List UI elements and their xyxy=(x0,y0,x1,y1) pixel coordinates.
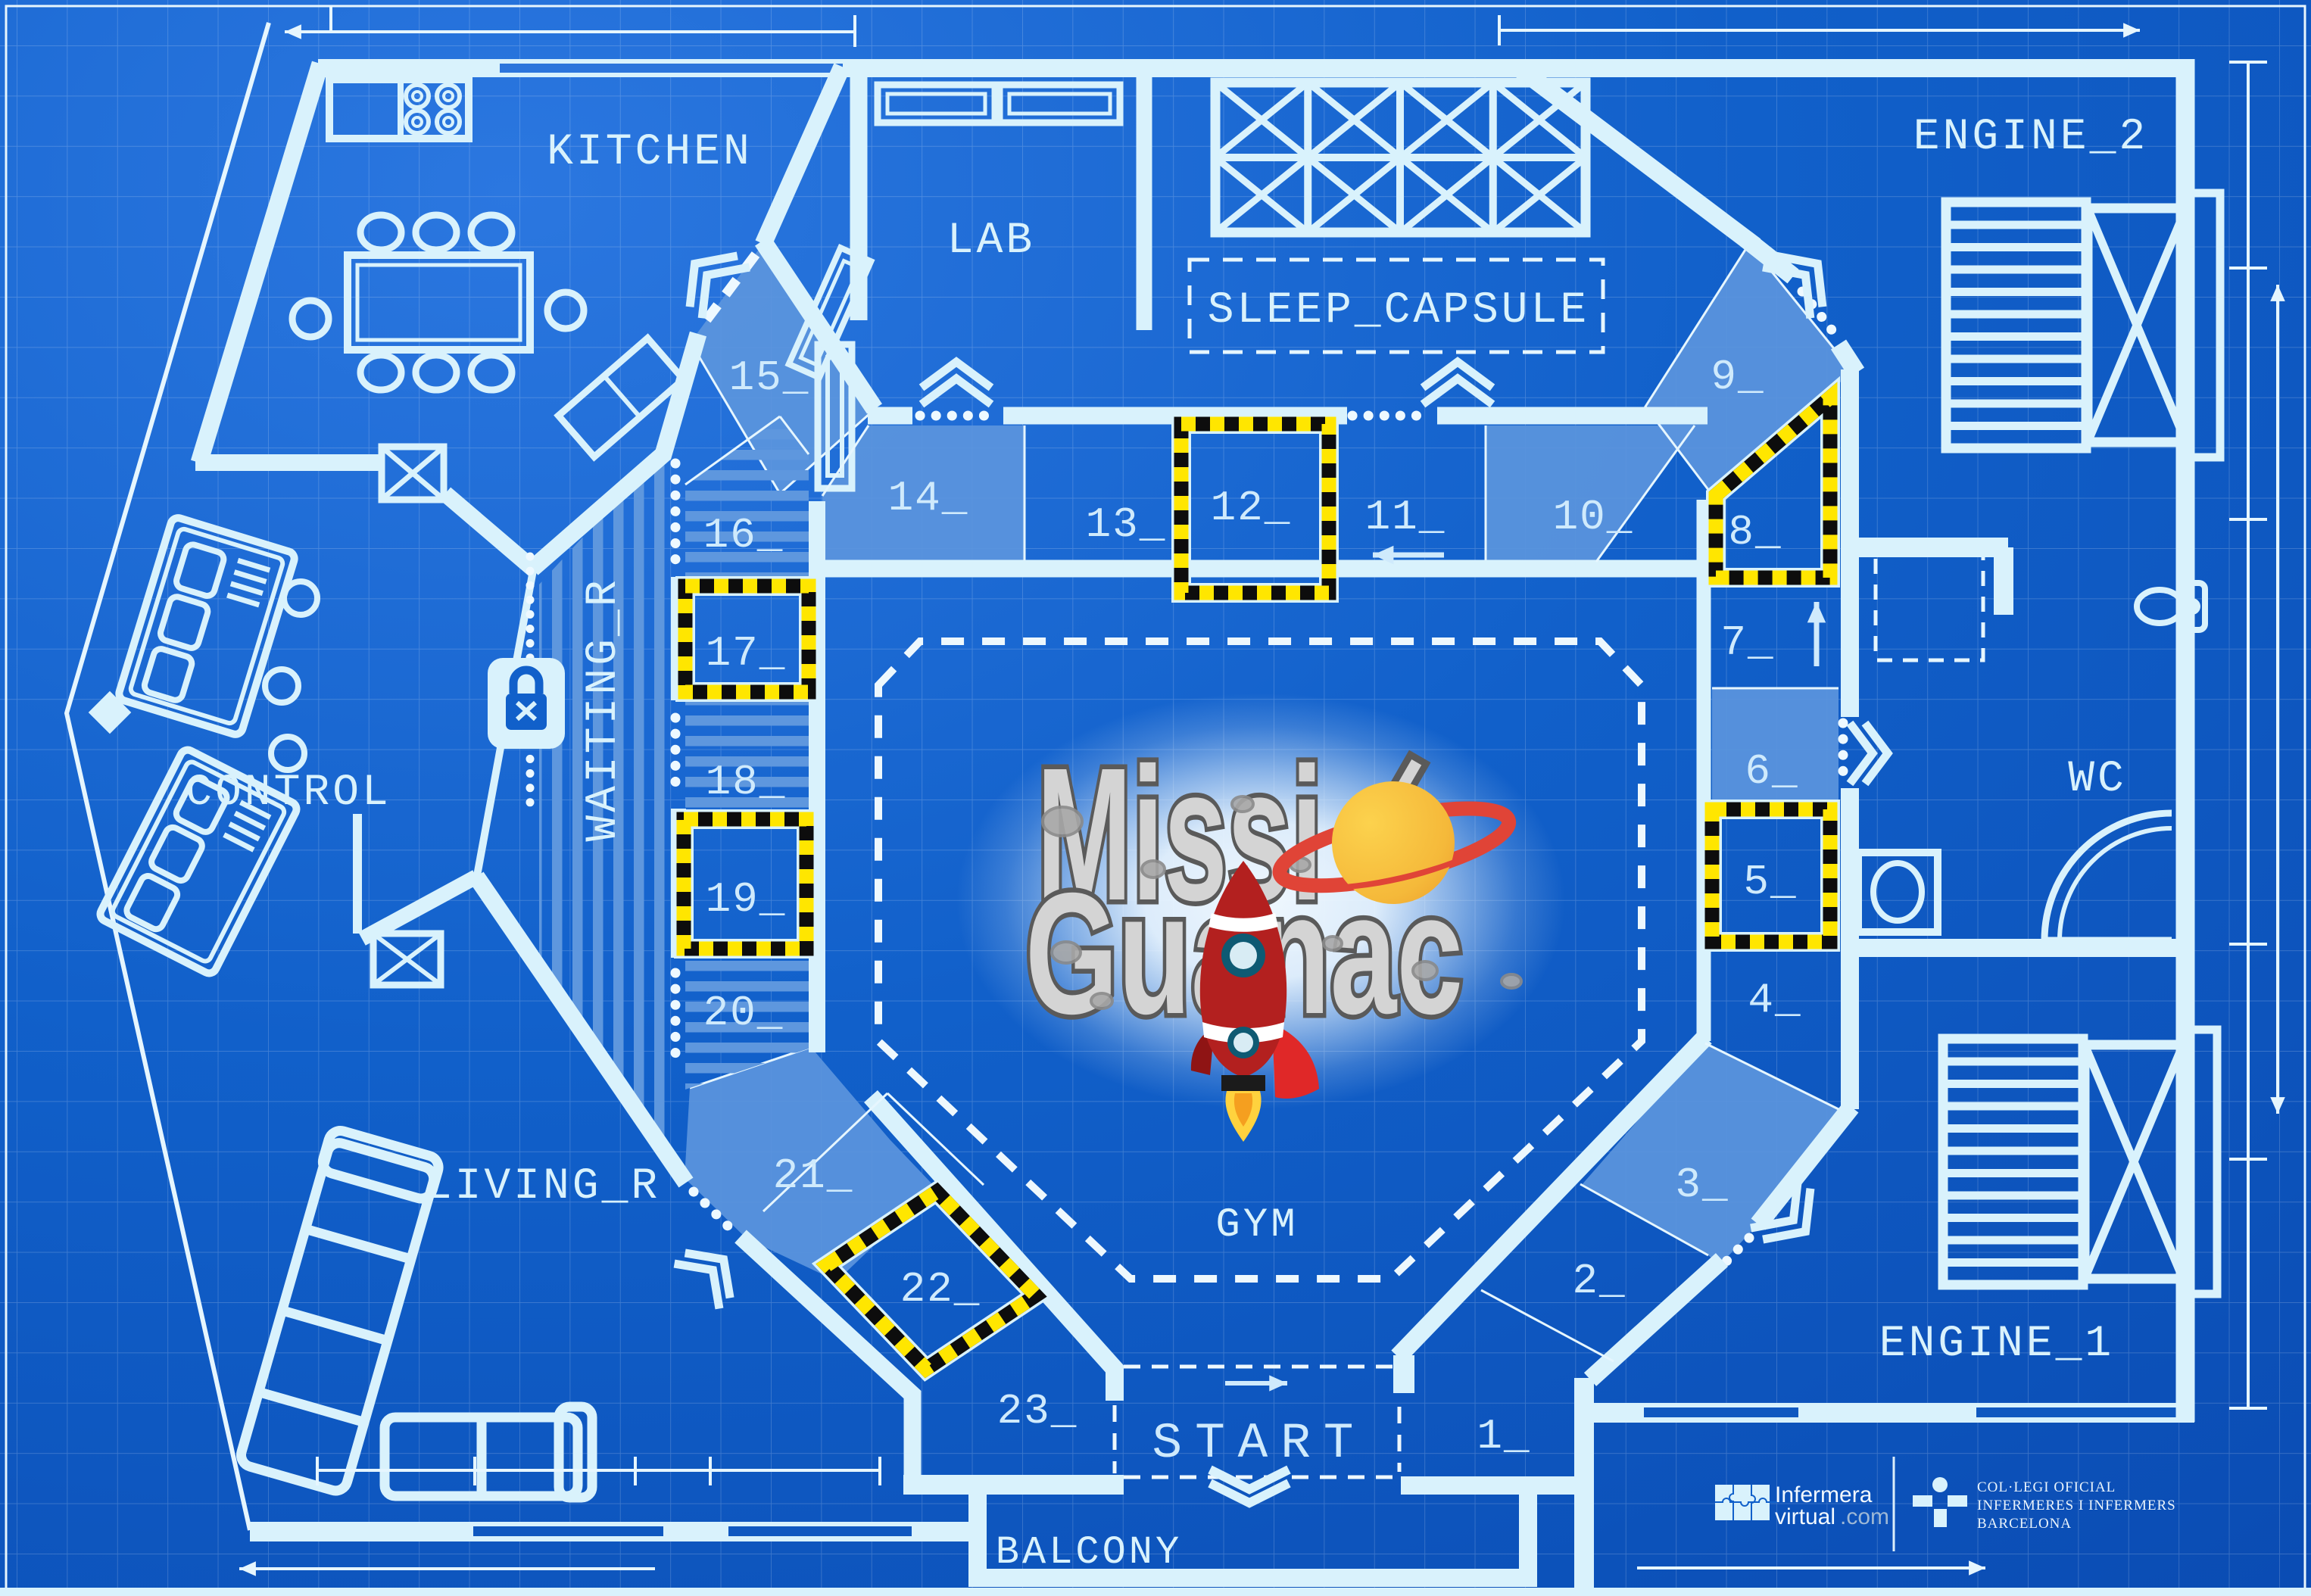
svg-text:BALCONY: BALCONY xyxy=(996,1530,1182,1575)
svg-text:19_: 19_ xyxy=(706,875,787,924)
svg-text:CONTROL: CONTROL xyxy=(186,768,391,818)
svg-text:22_: 22_ xyxy=(900,1265,981,1314)
svg-text:KITCHEN: KITCHEN xyxy=(547,128,753,177)
svg-text:3_: 3_ xyxy=(1675,1161,1729,1209)
svg-text:4_: 4_ xyxy=(1748,976,1801,1024)
svg-text:INFERMERES I INFERMERS: INFERMERES I INFERMERS xyxy=(1977,1498,2176,1513)
svg-text:14_: 14_ xyxy=(888,474,969,522)
svg-text:12_: 12_ xyxy=(1211,484,1292,532)
svg-text:23_: 23_ xyxy=(997,1387,1078,1435)
svg-text:15_: 15_ xyxy=(729,354,810,402)
svg-text:16_: 16_ xyxy=(703,511,784,560)
svg-text:21_: 21_ xyxy=(773,1152,854,1200)
svg-text:8_: 8_ xyxy=(1728,508,1782,556)
svg-text:.com: .com xyxy=(1840,1504,1889,1529)
svg-text:GYM: GYM xyxy=(1215,1202,1298,1248)
svg-text:5_: 5_ xyxy=(1743,858,1797,906)
svg-text:17_: 17_ xyxy=(706,629,787,678)
svg-text:SLEEP_CAPSULE: SLEEP_CAPSULE xyxy=(1208,286,1589,335)
svg-text:13_: 13_ xyxy=(1086,500,1167,549)
svg-text:20_: 20_ xyxy=(703,989,784,1037)
svg-text:LIVING_R: LIVING_R xyxy=(426,1162,660,1211)
svg-text:virtual: virtual xyxy=(1775,1504,1835,1529)
svg-text:7_: 7_ xyxy=(1720,619,1774,667)
svg-text:COL·LEGI OFICIAL: COL·LEGI OFICIAL xyxy=(1977,1479,2116,1495)
svg-text:10_: 10_ xyxy=(1553,493,1634,541)
svg-text:START: START xyxy=(1152,1415,1366,1472)
svg-text:9_: 9_ xyxy=(1711,353,1764,401)
svg-text:WC: WC xyxy=(2068,755,2127,804)
svg-text:11_: 11_ xyxy=(1365,493,1446,541)
svg-text:BARCELONA: BARCELONA xyxy=(1977,1516,2072,1532)
svg-text:2_: 2_ xyxy=(1572,1257,1626,1305)
svg-text:18_: 18_ xyxy=(706,758,787,806)
svg-text:ENGINE_1: ENGINE_1 xyxy=(1879,1320,2114,1369)
svg-text:1_: 1_ xyxy=(1477,1412,1530,1460)
svg-text:6_: 6_ xyxy=(1745,747,1798,796)
svg-text:LAB: LAB xyxy=(947,217,1035,266)
svg-text:ENGINE_2: ENGINE_2 xyxy=(1913,113,2148,162)
svg-text:WAITING_R: WAITING_R xyxy=(579,577,628,841)
